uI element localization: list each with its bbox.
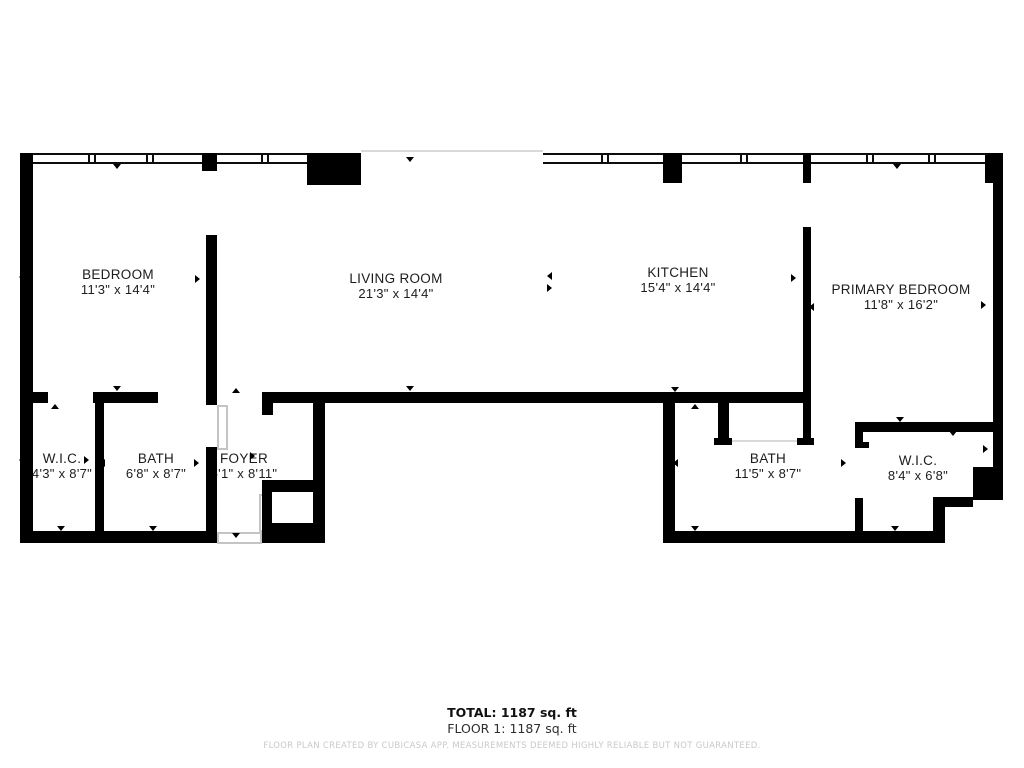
wall	[262, 523, 325, 543]
wall	[307, 153, 361, 185]
dimension-arrow	[57, 526, 65, 531]
dimension-arrow	[113, 164, 121, 169]
wall	[262, 480, 325, 492]
dimension-arrow	[51, 404, 59, 409]
window-mullion	[866, 155, 874, 162]
window-mullion	[261, 155, 269, 162]
room-name: LIVING ROOM	[316, 271, 476, 286]
room-label-kitchen: KITCHEN 15'4" x 14'4"	[598, 265, 758, 295]
room-label-bath-right: BATH 11'5" x 8'7"	[723, 451, 813, 481]
wall	[262, 403, 273, 415]
wall	[663, 392, 675, 543]
glass-line	[361, 150, 543, 152]
tub-edge	[729, 440, 798, 442]
dimension-arrow	[194, 459, 199, 467]
dimension-arrow	[100, 459, 105, 467]
room-label-bedroom: BEDROOM 11'3" x 14'4"	[38, 267, 198, 297]
room-name: KITCHEN	[598, 265, 758, 280]
dimension-arrow	[841, 459, 846, 467]
dimension-arrow	[232, 388, 240, 393]
window-mullion	[146, 155, 154, 162]
dimension-arrow	[981, 301, 986, 309]
dimension-arrow	[949, 431, 957, 436]
dimension-arrow	[207, 461, 212, 469]
wall	[797, 438, 814, 445]
room-dims: 8'4" x 6'8"	[873, 468, 963, 483]
dimension-arrow	[691, 404, 699, 409]
wall	[20, 153, 33, 543]
dimension-arrow	[891, 526, 899, 531]
room-label-living-room: LIVING ROOM 21'3" x 14'4"	[316, 271, 476, 301]
wall	[855, 442, 869, 448]
dimension-arrow	[113, 386, 121, 391]
window-mullion	[928, 155, 936, 162]
dimension-arrow	[232, 533, 240, 538]
dimension-arrow	[250, 452, 255, 460]
wall	[714, 438, 732, 445]
dimension-arrow	[893, 164, 901, 169]
dimension-arrow	[803, 299, 808, 307]
disclaimer-text: FLOOR PLAN CREATED BY CUBICASA APP. MEAS…	[0, 741, 1024, 751]
room-name: BATH	[116, 451, 196, 466]
room-dims: 11'5" x 8'7"	[723, 466, 813, 481]
room-dims: 4'3" x 8'7"	[22, 466, 102, 481]
wall	[803, 227, 811, 445]
wall	[973, 467, 1003, 500]
wall	[718, 398, 729, 438]
wall	[985, 153, 1003, 183]
dimension-arrow	[809, 303, 814, 311]
dimension-arrow	[547, 284, 552, 292]
window	[217, 153, 307, 164]
room-dims: 11'3" x 14'4"	[38, 282, 198, 297]
wall	[20, 392, 48, 403]
window	[33, 153, 202, 164]
floor-area-text: FLOOR 1: 1187 sq. ft	[0, 721, 1024, 736]
dimension-arrow	[691, 526, 699, 531]
wall	[855, 422, 1003, 432]
room-label-primary-bedroom: PRIMARY BEDROOM 11'8" x 16'2"	[806, 282, 996, 312]
wall	[262, 492, 272, 523]
window	[682, 153, 803, 164]
window	[543, 153, 663, 164]
dimension-arrow	[671, 387, 679, 392]
wall	[202, 153, 217, 171]
room-dims: 15'4" x 14'4"	[598, 280, 758, 295]
room-name: W.I.C.	[873, 453, 963, 468]
room-label-wic-right: W.I.C. 8'4" x 6'8"	[873, 453, 963, 483]
dimension-arrow	[84, 456, 89, 464]
total-area-text: TOTAL: 1187 sq. ft	[0, 705, 1024, 720]
wall	[663, 531, 945, 543]
dimension-arrow	[983, 445, 988, 453]
dimension-arrow	[791, 274, 796, 282]
floor-plan: BEDROOM 11'3" x 14'4" LIVING ROOM 21'3" …	[0, 0, 1024, 768]
dimension-arrow	[19, 273, 24, 281]
dimension-arrow	[195, 275, 200, 283]
dimension-arrow	[896, 417, 904, 422]
dimension-arrow	[149, 526, 157, 531]
wall	[663, 153, 682, 183]
room-name: BEDROOM	[38, 267, 198, 282]
wall	[20, 531, 217, 543]
door-leaf	[217, 405, 228, 450]
wall	[945, 497, 973, 507]
room-name: W.I.C.	[22, 451, 102, 466]
room-dims: 6'8" x 8'7"	[116, 466, 196, 481]
window-mullion	[601, 155, 609, 162]
window-mullion	[740, 155, 748, 162]
room-dims: 11'8" x 16'2"	[806, 297, 996, 312]
dimension-arrow	[19, 456, 24, 464]
window-mullion	[88, 155, 96, 162]
room-dims: 21'3" x 14'4"	[316, 286, 476, 301]
dimension-arrow	[406, 157, 414, 162]
wall	[206, 235, 217, 405]
room-name: PRIMARY BEDROOM	[806, 282, 996, 297]
dimension-arrow	[673, 459, 678, 467]
room-name: BATH	[723, 451, 813, 466]
wall	[855, 498, 863, 543]
room-label-wic-left: W.I.C. 4'3" x 8'7"	[22, 451, 102, 481]
dimension-arrow	[547, 272, 552, 280]
wall	[803, 153, 811, 183]
dimension-arrow	[406, 386, 414, 391]
wall	[313, 392, 325, 543]
room-label-bath-left: BATH 6'8" x 8'7"	[116, 451, 196, 481]
window	[811, 153, 985, 164]
